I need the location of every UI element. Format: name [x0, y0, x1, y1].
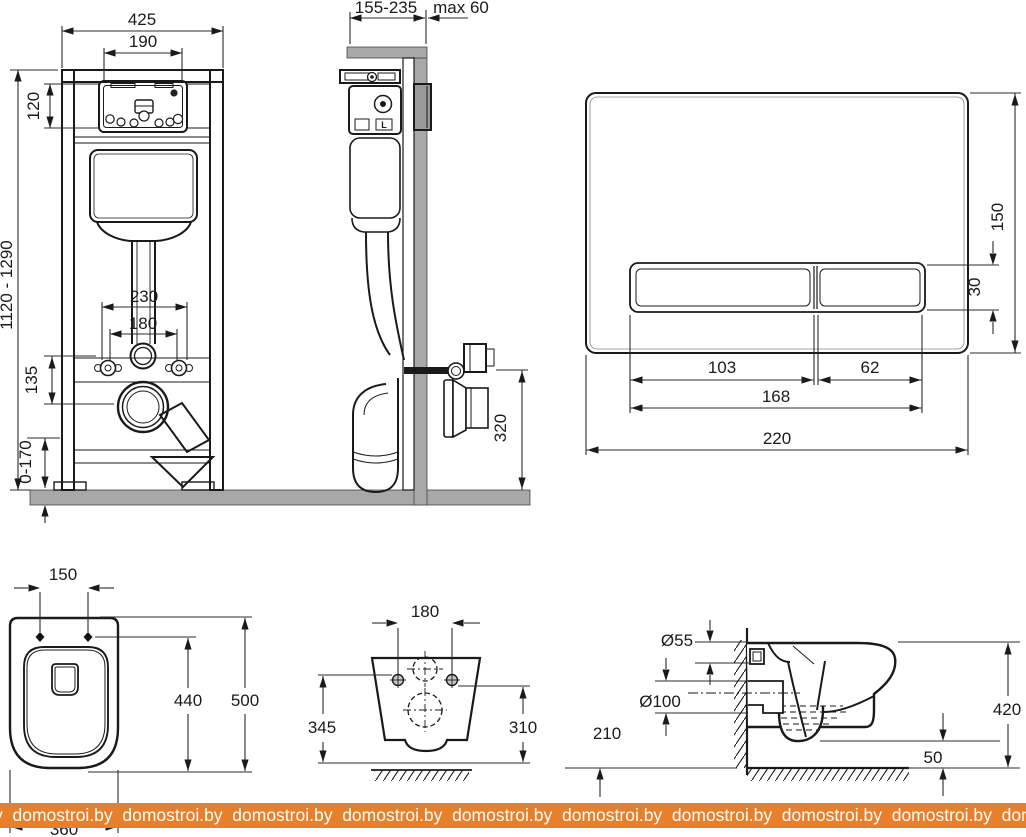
dim-buttons-width: 168 [762, 387, 790, 406]
tank-mark-label: L [381, 120, 387, 130]
dim-holes-to-front: 440 [174, 691, 202, 710]
bowl-rear-view: 180 345 310 [308, 602, 537, 781]
frame-side-view: L 155-235 max 60 [340, 0, 528, 505]
dim-bottom-clearance: 50 [924, 748, 943, 767]
dim-outlet-diameter: Ø100 [639, 692, 681, 711]
bowl-top-view: 150 440 500 360 [10, 565, 259, 837]
dim-button-right-width: 62 [861, 358, 880, 377]
dim-frame-height-range: 1120 - 1290 [0, 240, 16, 329]
dim-hole-spacing-inner: 180 [129, 314, 157, 333]
dim-outlet-center-height: 210 [593, 724, 621, 743]
floor-slab [30, 490, 530, 505]
dim-outlet-offset: 135 [22, 366, 41, 394]
dim-outlet-height: 320 [491, 414, 510, 442]
dim-opening-width: 190 [129, 32, 157, 51]
dim-button-left-width: 103 [708, 358, 736, 377]
dim-feet-range: 0-170 [16, 440, 35, 483]
dim-button-height: 30 [965, 278, 984, 297]
dim-top-hole-spacing: 150 [49, 565, 77, 584]
dim-rear-hole-spacing: 180 [411, 602, 439, 621]
dim-opening-height: 120 [24, 92, 43, 120]
dim-total-depth: 500 [231, 691, 259, 710]
dim-plate-width: 220 [763, 429, 791, 448]
frame-front-view: 425 190 120 1120 - 1290 230 180 [0, 10, 223, 523]
watermark-text: y domostroi.by domostroi.by domostroi.by… [0, 805, 1026, 825]
dim-depth-range: 155-235 [355, 0, 417, 17]
drawing-canvas: 425 190 120 1120 - 1290 230 180 [0, 0, 1026, 837]
watermark: y domostroi.by domostroi.by domostroi.by… [0, 803, 1026, 828]
dim-bowl-height: 420 [993, 700, 1021, 719]
dim-frame-total-width: 425 [128, 10, 156, 29]
dim-plate-height: 150 [988, 203, 1007, 231]
dim-inlet-diameter: Ø55 [661, 631, 693, 650]
flush-plate-view: 150 30 103 62 168 220 [586, 93, 1021, 455]
technical-drawing-page: 425 190 120 1120 - 1290 230 180 [0, 0, 1026, 837]
dim-wall-max: max 60 [433, 0, 489, 17]
bowl-side-view: 420 50 Ø55 Ø100 210 [565, 620, 1021, 797]
flush-buttons-group[interactable] [630, 263, 925, 312]
dim-rear-right-height: 310 [509, 718, 537, 737]
dim-rear-left-height: 345 [308, 718, 336, 737]
dim-hole-spacing-outer: 230 [130, 287, 158, 306]
